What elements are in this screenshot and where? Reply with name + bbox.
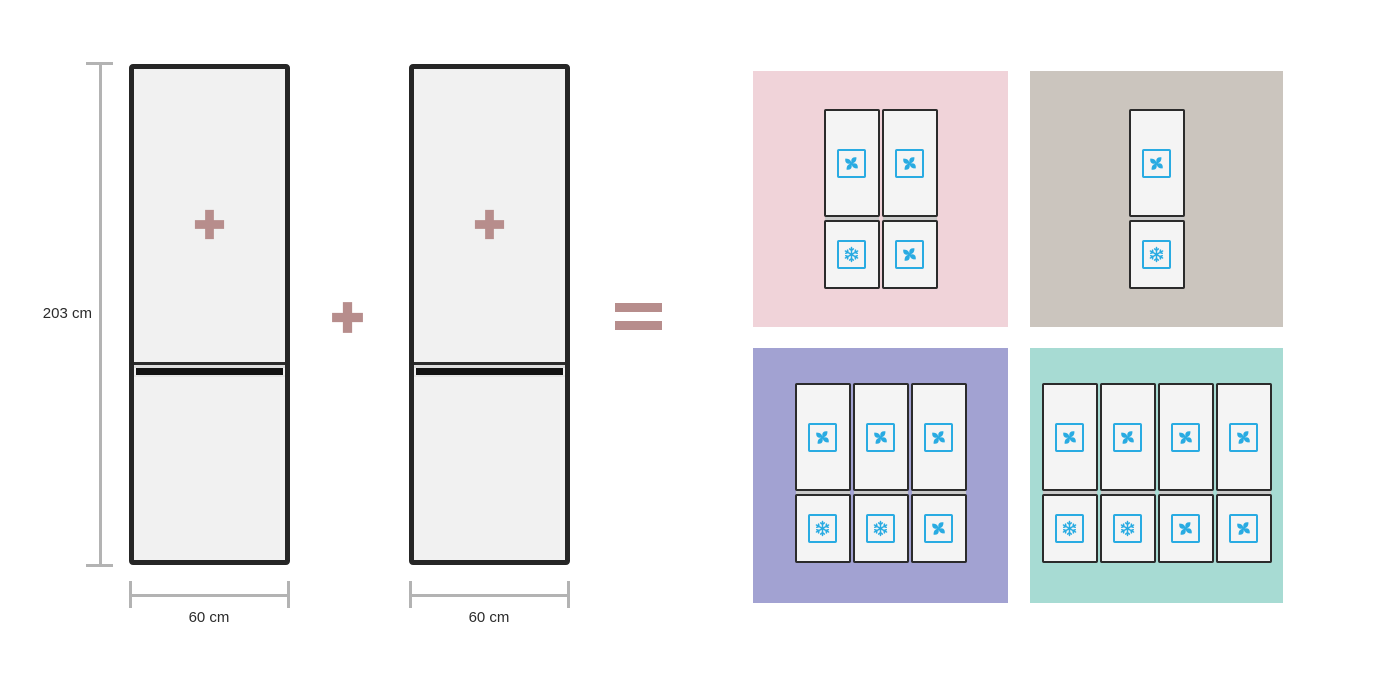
fresh-compartment [911,383,967,491]
freezer-compartment [1100,494,1156,563]
fan-icon [924,514,953,543]
fridge-unit [1129,109,1185,289]
equals-top-bar [615,303,662,312]
fresh-compartment [1100,383,1156,491]
fridge-unit [1042,383,1098,563]
fan-icon [895,149,924,178]
width-dimension-1-right-cap [287,581,290,608]
fridge-2-bottom-door [414,377,565,560]
freezer-compartment [1158,494,1214,563]
fresh-compartment [1129,109,1185,217]
fridge-1-top-door [134,69,285,365]
fridge-unit [853,383,909,563]
fan-icon [837,149,866,178]
result-panel-purple [753,348,1008,603]
fan-icon [1171,514,1200,543]
freezer-compartment [882,220,938,289]
fan-icon [808,423,837,452]
fridge-unit [1100,383,1156,563]
fridge-unit [795,383,851,563]
freezer-compartment [824,220,880,289]
plus-operator-icon [329,299,366,336]
height-dimension-bottom-cap [86,564,113,567]
result-panel-pink [753,71,1008,327]
fridge-2-handle-bar [416,368,563,375]
width-dimension-1-label: 60 cm [144,609,274,626]
fresh-compartment [1042,383,1098,491]
fridge-unit [1158,383,1214,563]
fridge-2 [409,64,570,565]
mini-fridge-group [824,109,938,289]
fresh-compartment [882,109,938,217]
fridge-unit [824,109,880,289]
mini-fridge-group [795,383,967,563]
freezer-compartment [795,494,851,563]
fresh-compartment [1216,383,1272,491]
snowflake-icon [1055,514,1084,543]
mini-fridge-group [1042,383,1272,563]
equals-bottom-bar [615,321,662,330]
snowflake-icon [808,514,837,543]
freezer-compartment [911,494,967,563]
fan-icon [1142,149,1171,178]
height-dimension-label: 203 cm [28,305,92,322]
plus-icon [472,207,507,242]
fan-icon [866,423,895,452]
width-dimension-1-line [129,594,290,597]
fresh-compartment [853,383,909,491]
fan-icon [895,240,924,269]
fridge-unit [1216,383,1272,563]
width-dimension-2-label: 60 cm [424,609,554,626]
fridge-unit [911,383,967,563]
fridge-1 [129,64,290,565]
fan-icon [1229,514,1258,543]
equals-operator-icon [615,303,662,330]
result-panel-taupe [1030,71,1283,327]
fresh-compartment [824,109,880,217]
freezer-compartment [853,494,909,563]
snowflake-icon [1113,514,1142,543]
snowflake-icon [837,240,866,269]
width-dimension-2-right-cap [567,581,570,608]
fan-icon [924,423,953,452]
fan-icon [1055,423,1084,452]
snowflake-icon [1142,240,1171,269]
width-dimension-2-line [409,594,570,597]
freezer-compartment [1042,494,1098,563]
result-panel-teal [1030,348,1283,603]
fan-icon [1229,423,1258,452]
fridge-1-handle-bar [136,368,283,375]
freezer-compartment [1216,494,1272,563]
fridge-2-top-door [414,69,565,365]
fan-icon [1113,423,1142,452]
mini-fridge-group [1129,109,1185,289]
fan-icon [1171,423,1200,452]
plus-icon [192,207,227,242]
freezer-compartment [1129,220,1185,289]
fridge-capacity-diagram: 203 cm 60 cm 60 cm [0,0,1400,675]
fresh-compartment [795,383,851,491]
fresh-compartment [1158,383,1214,491]
fridge-1-bottom-door [134,377,285,560]
fridge-unit [882,109,938,289]
height-dimension-line [99,62,102,567]
snowflake-icon [866,514,895,543]
